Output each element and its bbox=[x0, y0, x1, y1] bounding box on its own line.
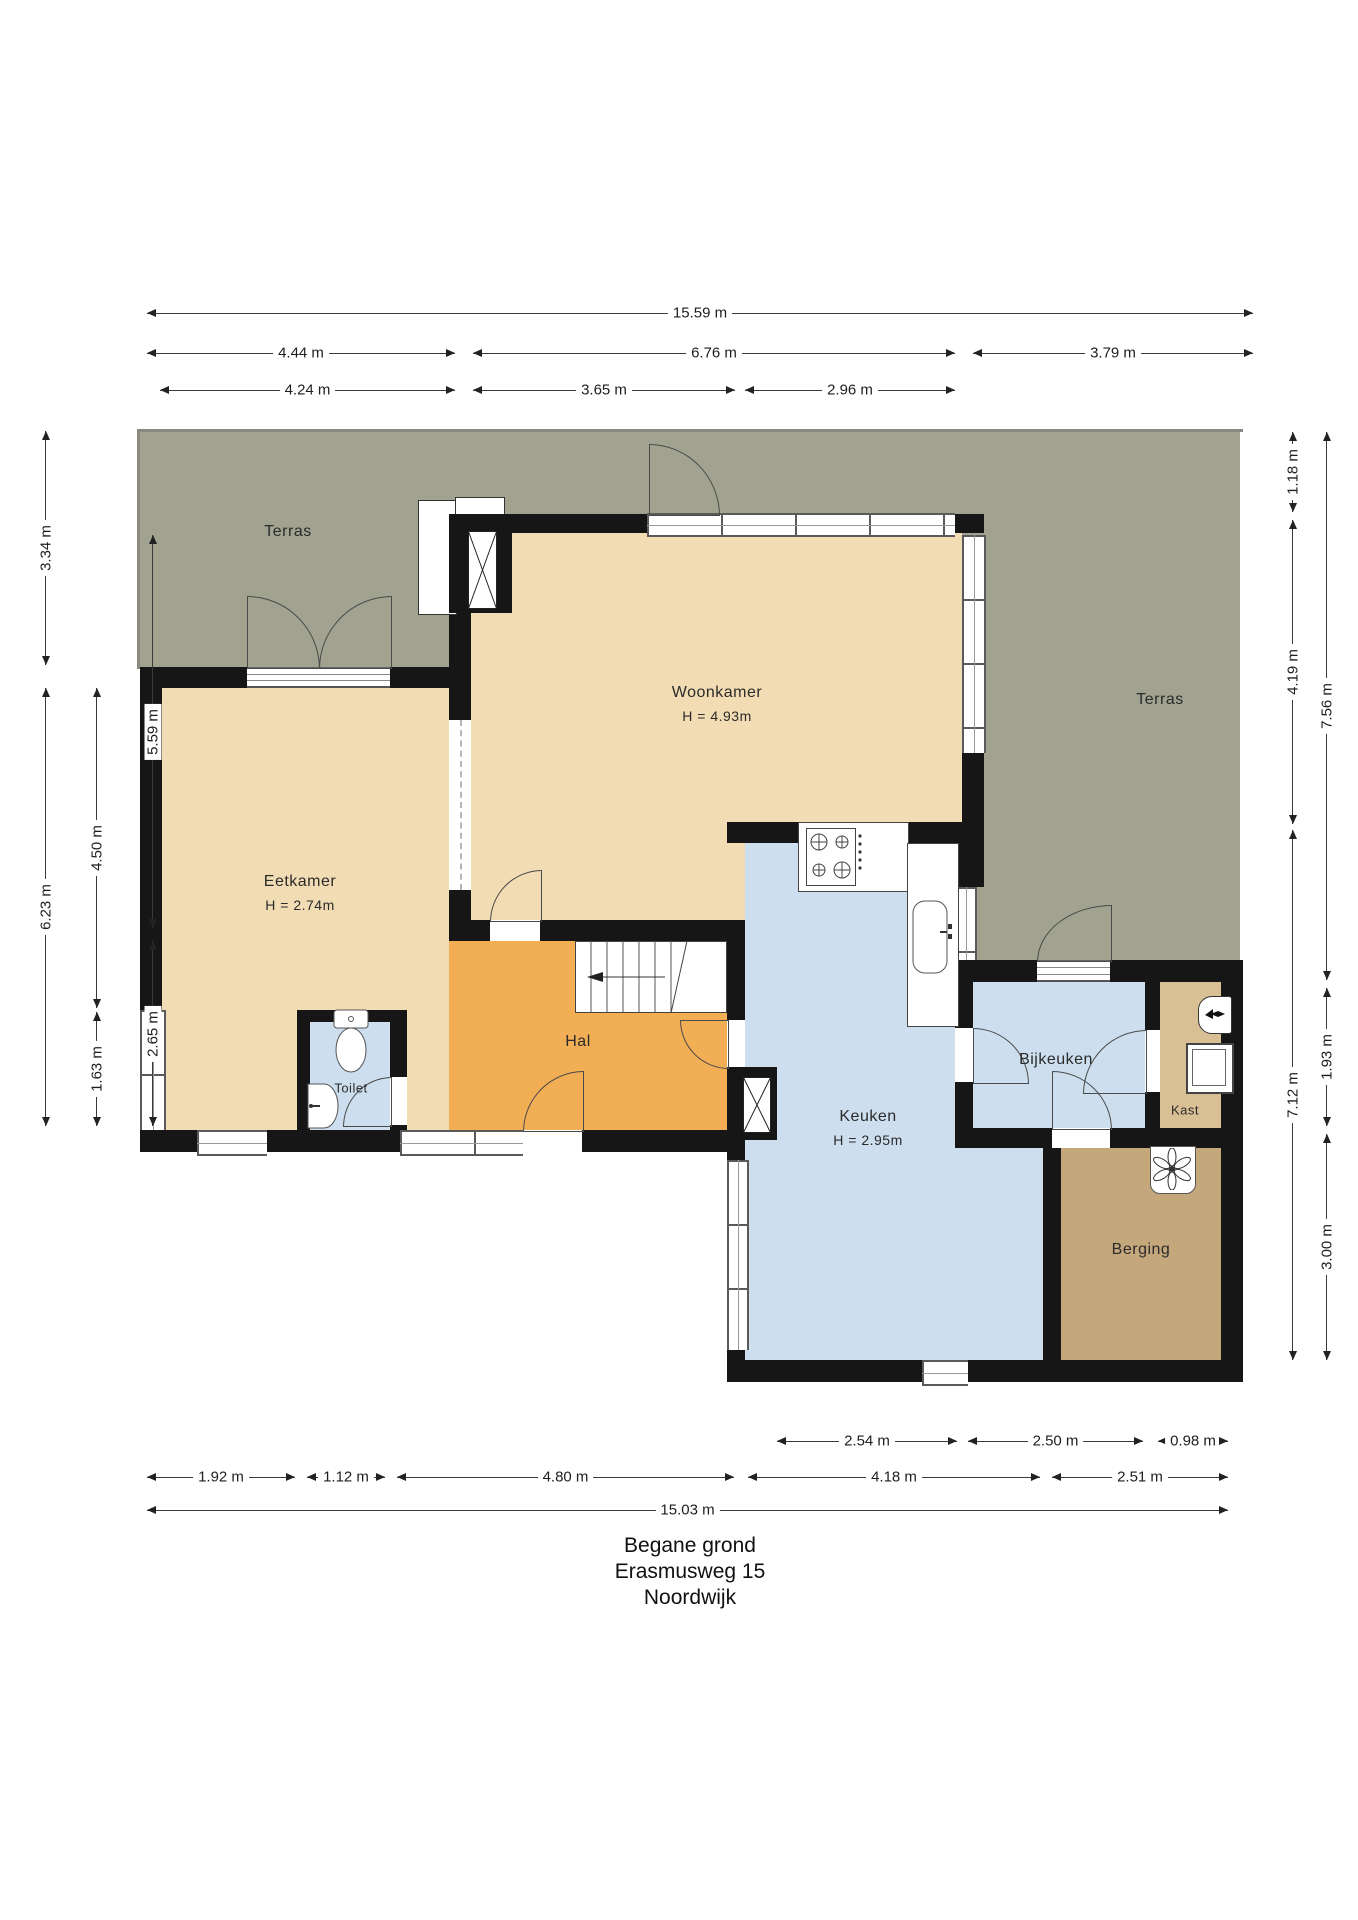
wall bbox=[955, 514, 984, 533]
dim-right: 1.93 m bbox=[1320, 988, 1334, 1126]
wall bbox=[390, 667, 455, 688]
window bbox=[197, 1130, 267, 1156]
wall bbox=[727, 1350, 745, 1360]
room-label-berging: Berging bbox=[1112, 1241, 1171, 1259]
dim-right: 7.56 m bbox=[1320, 432, 1334, 980]
wall bbox=[968, 1360, 1243, 1382]
wall bbox=[907, 822, 973, 843]
stove-icon bbox=[806, 828, 864, 886]
door-opening bbox=[955, 1028, 973, 1082]
room-height-woonkamer: H = 4.93m bbox=[682, 708, 751, 724]
wall bbox=[955, 1082, 973, 1128]
room-label-kast: Kast bbox=[1171, 1103, 1199, 1118]
kitchen-sink-icon bbox=[912, 900, 954, 980]
wall bbox=[1221, 982, 1243, 1360]
dim-bottom: 4.80 m bbox=[397, 1470, 734, 1484]
wall bbox=[1145, 982, 1160, 1030]
terras-door-sill bbox=[1037, 960, 1110, 982]
dim-top: 2.96 m bbox=[745, 383, 955, 397]
dim-bottom: 1.92 m bbox=[147, 1470, 295, 1484]
door-opening bbox=[490, 920, 540, 941]
duct-x-icon bbox=[743, 1077, 771, 1133]
wall bbox=[540, 920, 745, 941]
room-label-toilet: Toilet bbox=[334, 1081, 367, 1096]
door-opening bbox=[1052, 1128, 1110, 1148]
room-label-bijkeuken: Bijkeuken bbox=[1019, 1051, 1093, 1069]
window bbox=[647, 513, 955, 537]
room-label-woonkamer: Woonkamer bbox=[672, 684, 762, 702]
window bbox=[400, 1130, 523, 1156]
wall bbox=[140, 1130, 197, 1152]
wall bbox=[955, 1128, 1052, 1148]
wall bbox=[471, 920, 490, 941]
door-opening bbox=[727, 1020, 745, 1067]
dim-bottom: 2.50 m bbox=[968, 1434, 1143, 1448]
dim-left: 4.50 m bbox=[90, 688, 104, 1008]
room-label-hal: Hal bbox=[565, 1033, 591, 1051]
wall bbox=[1145, 1092, 1160, 1128]
dim-left: 5.59 m bbox=[146, 535, 160, 928]
fan-icon bbox=[1152, 1148, 1192, 1190]
dim-top: 4.44 m bbox=[147, 346, 455, 360]
dim-top-total: 15.59 m bbox=[147, 306, 1253, 320]
room-label-keuken: Keuken bbox=[839, 1108, 896, 1126]
room-label-terras-left: Terras bbox=[264, 523, 311, 541]
stairs bbox=[575, 941, 727, 1013]
wall bbox=[582, 1130, 745, 1152]
dim-right: 1.18 m bbox=[1286, 432, 1300, 512]
dim-top: 3.79 m bbox=[973, 346, 1253, 360]
wall bbox=[727, 1140, 745, 1160]
dim-top: 3.65 m bbox=[473, 383, 735, 397]
tap-icon bbox=[1204, 1006, 1226, 1022]
dim-right: 3.00 m bbox=[1320, 1134, 1334, 1360]
dim-bottom: 1.12 m bbox=[307, 1470, 385, 1484]
dim-left: 3.34 m bbox=[39, 431, 53, 665]
door-opening bbox=[1145, 1030, 1160, 1092]
wall bbox=[1110, 960, 1243, 982]
wall bbox=[727, 941, 745, 1020]
room-height-eetkamer: H = 2.74m bbox=[265, 897, 334, 913]
dim-left: 1.63 m bbox=[90, 1012, 104, 1126]
room-label-terras-right: Terras bbox=[1136, 691, 1183, 709]
window bbox=[962, 535, 986, 753]
dim-left: 6.23 m bbox=[39, 688, 53, 1126]
wall bbox=[727, 1360, 922, 1382]
title-floor: Begane grond bbox=[440, 1533, 940, 1559]
title-address: Erasmusweg 15 bbox=[440, 1559, 940, 1585]
dim-right: 4.19 m bbox=[1286, 520, 1300, 824]
washer-inner bbox=[1192, 1049, 1226, 1086]
sliding-opening bbox=[449, 720, 471, 890]
wall bbox=[1043, 1148, 1061, 1360]
washer bbox=[1186, 1043, 1234, 1094]
dim-bottom: 2.54 m bbox=[777, 1434, 957, 1448]
room-keuken-south bbox=[955, 1148, 1043, 1360]
dim-top: 6.76 m bbox=[473, 346, 955, 360]
window bbox=[922, 1360, 968, 1386]
dim-bottom: 2.51 m bbox=[1052, 1470, 1228, 1484]
room-label-eetkamer: Eetkamer bbox=[264, 873, 336, 891]
window bbox=[727, 1160, 749, 1350]
front-door-opening bbox=[523, 1130, 582, 1152]
dim-right: 7.12 m bbox=[1286, 830, 1300, 1360]
wall bbox=[955, 960, 1037, 982]
flue-x-icon bbox=[468, 531, 497, 609]
dim-top: 4.24 m bbox=[160, 383, 455, 397]
dim-bottom: 4.18 m bbox=[748, 1470, 1040, 1484]
wall bbox=[727, 822, 798, 843]
dim-left: 2.65 m bbox=[146, 941, 160, 1126]
wall bbox=[449, 890, 471, 941]
title-block: Begane grond Erasmusweg 15 Noordwijk bbox=[440, 1533, 940, 1611]
dim-bottom: 0.98 m bbox=[1158, 1434, 1228, 1448]
wall bbox=[267, 1130, 400, 1152]
dim-bottom-total: 15.03 m bbox=[147, 1503, 1228, 1517]
toilet-icon bbox=[306, 1008, 402, 1130]
wall bbox=[1110, 1128, 1221, 1148]
wall bbox=[955, 843, 984, 887]
title-city: Noordwijk bbox=[440, 1585, 940, 1611]
french-door-sill bbox=[247, 667, 390, 688]
floorplan-canvas: Terras Terras Woonkamer H = 4.93m Eetkam… bbox=[0, 0, 1358, 1920]
room-height-keuken: H = 2.95m bbox=[833, 1132, 902, 1148]
